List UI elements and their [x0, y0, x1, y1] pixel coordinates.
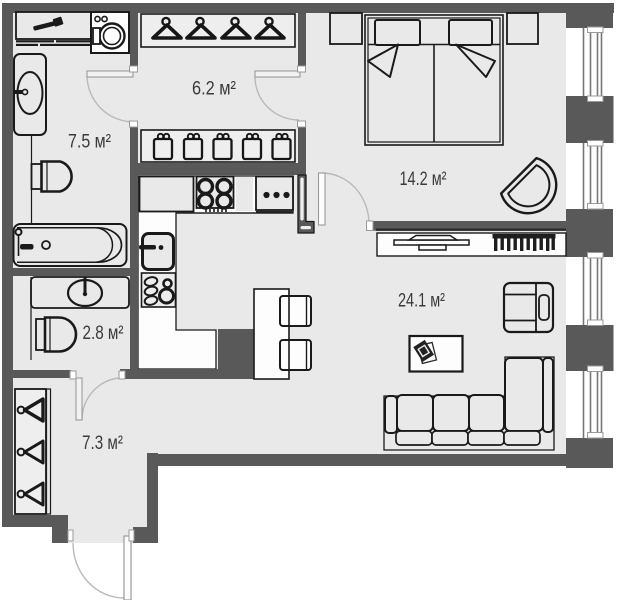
- svg-text:7.3 м²: 7.3 м²: [82, 433, 123, 454]
- svg-text:2.8 м²: 2.8 м²: [83, 323, 124, 344]
- svg-text:7.5 м²: 7.5 м²: [68, 132, 111, 153]
- svg-text:6.2 м²: 6.2 м²: [192, 79, 236, 100]
- svg-text:14.2 м²: 14.2 м²: [400, 169, 447, 190]
- svg-text:24.1 м²: 24.1 м²: [398, 291, 445, 312]
